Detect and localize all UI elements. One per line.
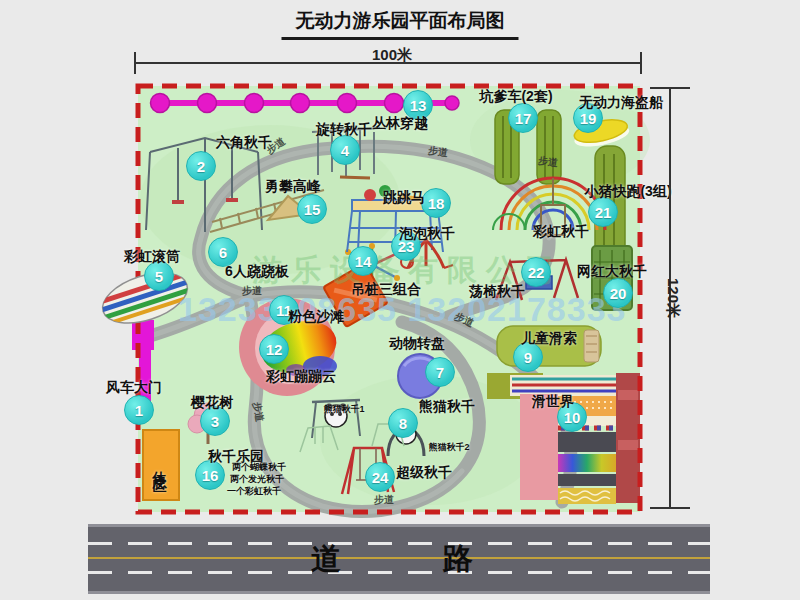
park-layout-screenshot: 无动力游乐园平面布局图 100米 120米: [0, 0, 800, 600]
dim-height-label: 120米: [663, 278, 682, 318]
dim-height-tick-bottom: [650, 507, 690, 509]
animal-carousel-circle: [398, 354, 442, 398]
page-title: 无动力游乐园平面布局图: [282, 8, 519, 40]
dim-width-label: 100米: [372, 46, 412, 65]
phone-watermark: 13233808635 13202178333: [178, 290, 626, 329]
rest-area-box: [143, 430, 179, 500]
dim-width-tick-right: [640, 52, 642, 74]
road: 道 路: [88, 524, 710, 594]
dim-width-tick-left: [134, 52, 136, 74]
windmill-gate-shape: [132, 320, 154, 406]
dim-height-tick-top: [650, 87, 690, 89]
company-watermark: 游乐设备有限公司: [252, 250, 564, 291]
road-label: 道 路: [311, 539, 487, 580]
piggy-run-pad: [595, 146, 625, 258]
zipline-pad: [497, 326, 601, 366]
